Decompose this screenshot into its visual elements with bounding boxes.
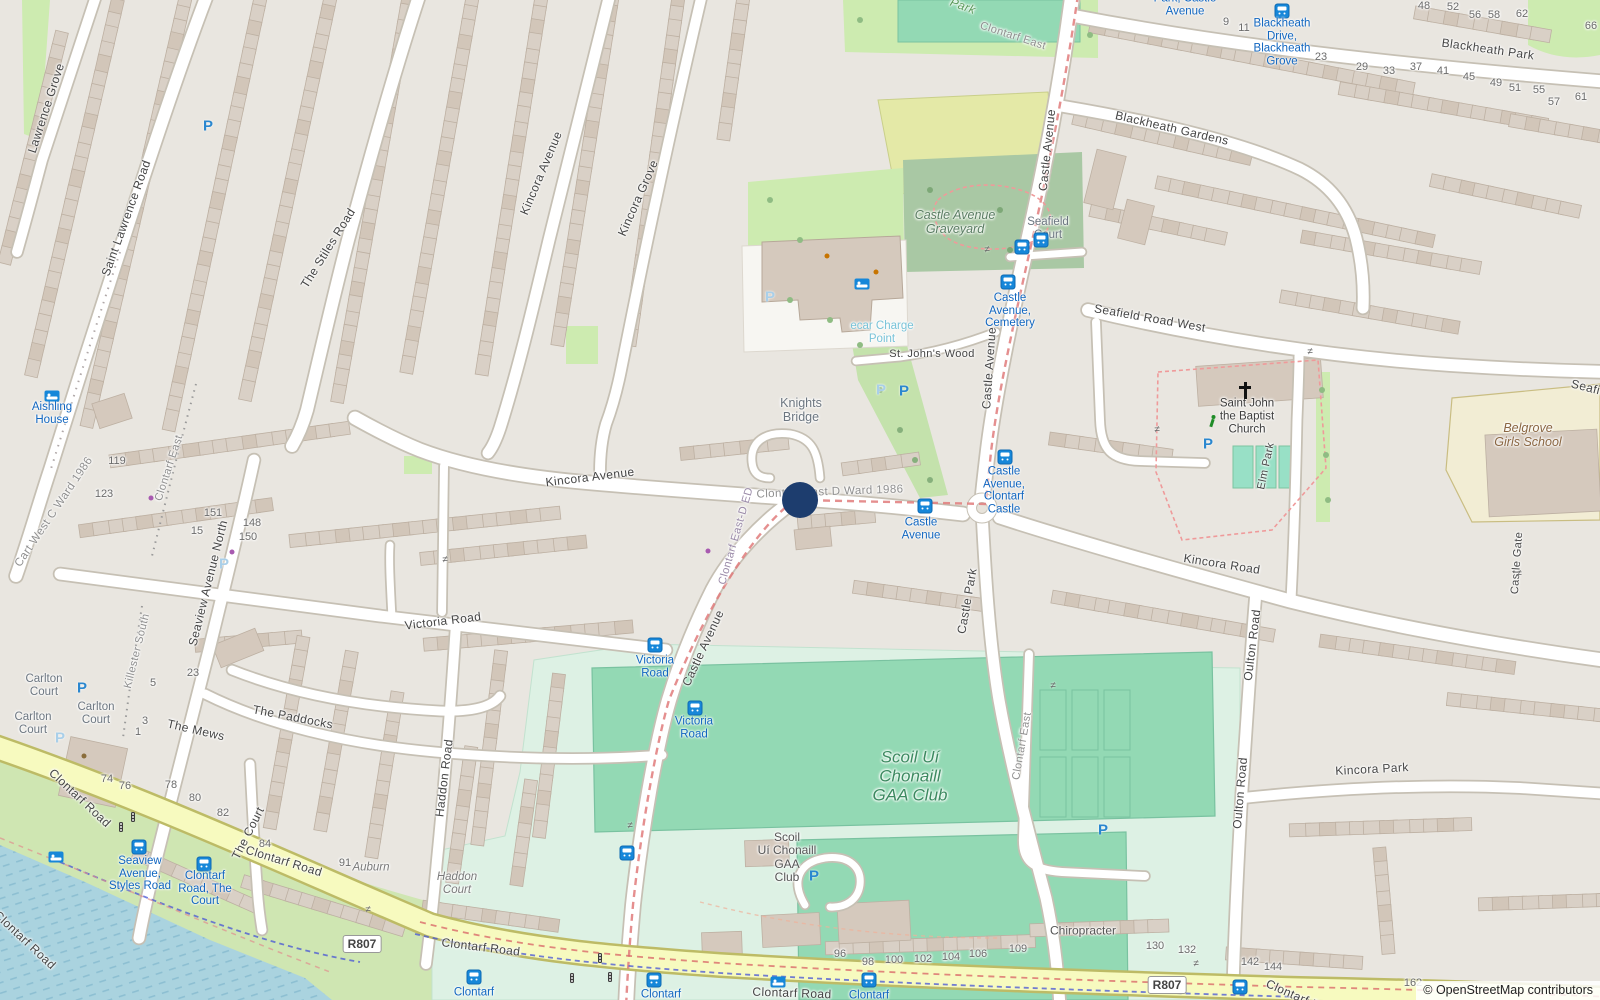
attribution[interactable]: © OpenStreetMap contributors [1416,981,1600,1000]
bus-stop-icon [918,499,933,514]
street-label: Cart West C Ward 1986 [13,455,96,569]
street-label: Kincora Park [1335,760,1409,778]
location-marker[interactable] [782,482,818,518]
traffic-signal-icon [608,972,612,982]
house-number: 9 [1223,16,1229,28]
gate-icon: ≠ [1050,681,1056,692]
bus-stop-label: Clontarf [641,989,681,1000]
parking-icon: P [899,383,909,400]
street-label: Clontarf Road [441,935,521,959]
gate-icon: ≠ [1154,425,1160,436]
street-label: Kincora Grove [615,158,661,239]
gate-icon: ≠ [365,905,371,916]
street-label: Blackheath Gardens [1114,108,1230,148]
house-number: 57 [1548,96,1560,108]
bus-stop-label: Seaview Avenue, Styles Road [109,855,171,893]
parking-icon: P [55,730,65,747]
house-number: 51 [1509,82,1521,94]
bus-stop-label: Clontarf Road, The Court [178,870,232,908]
bus-stop-label: Castle Avenue [902,516,941,541]
house-number: 11 [1238,22,1249,34]
street-label: The Stiles Road [298,206,358,291]
parking-icon: P [203,118,213,135]
bus-stop-icon [688,701,703,716]
parking-icon: P [77,680,87,697]
bus-stop-icon [1001,275,1016,290]
place-label: Auburn [352,862,389,875]
house-number: 23 [187,667,199,679]
house-number: 37 [1410,61,1422,73]
street-label: Elm Park [1255,441,1277,490]
bus-stop-icon [620,846,635,861]
street-label: Lawrence Grove [25,61,67,154]
street-label: Clontarf East D Ward 1986 [756,483,903,500]
house-number: 98 [862,956,874,968]
map-labels-layer: Lawrence GroveSaint Lawrence RoadThe Sti… [0,0,1600,1000]
house-number: 104 [942,951,960,963]
place-label: ecar Charge Point [850,320,913,346]
street-label: Clontarf East [1010,711,1034,781]
street-label: Park [948,0,977,17]
street-label: Seaview Avenue North [186,519,231,648]
bus-stop-label: Blackheath Drive, Blackheath Grove [1254,18,1311,69]
parking-icon: P [1203,436,1213,453]
place-label: Carlton Court [25,673,62,699]
house-number: 56 [1469,9,1481,21]
parking-icon: P [219,556,229,573]
house-number: 49 [1490,77,1502,89]
traffic-signal-icon [598,953,602,963]
parking-icon: P [876,382,886,399]
traffic-signal-icon [131,812,135,822]
poi-dot [82,754,87,759]
place-label: Castle Avenue Graveyard [915,208,996,236]
house-number: 84 [259,838,271,850]
parking-icon: P [765,289,775,306]
house-number: 62 [1516,8,1528,20]
lodging-icon [45,391,60,402]
house-number: 102 [914,953,932,965]
place-label: Aishling House [32,401,72,427]
parking-icon: P [1098,822,1108,839]
street-label: St. John's Wood [889,348,975,360]
house-number: 33 [1383,65,1395,77]
bus-stop-label: Victoria Road [675,715,713,740]
street-label: Haddon Road [432,738,455,818]
place-label: Carlton Court [14,711,51,737]
house-number: 144 [1264,961,1282,973]
street-label: Oulton Road [1241,609,1264,682]
house-number: 58 [1488,9,1500,21]
bus-stop-label: Castle Avenue, Cemetery [985,292,1035,330]
street-label: Clontarf East [153,433,186,502]
house-number: 66 [1585,20,1597,32]
house-number: 132 [1178,944,1196,956]
bus-stop-icon [132,840,147,855]
house-number: 29 [1356,61,1368,73]
street-label: Clontarf Road [0,908,59,972]
bus-stop-icon [467,970,482,985]
route-ref-badge: R807 [343,935,382,953]
place-label: Belgrove Girls School [1494,421,1561,449]
street-label: Clontarf East-D ED [716,486,755,586]
street-label: Oulton Road [1230,757,1250,830]
house-number: 45 [1463,71,1475,83]
house-number: 74 [101,773,113,785]
house-number: 148 [243,517,261,529]
bus-stop-icon [648,638,663,653]
shop-poi-dot [149,496,154,501]
house-number: 150 [239,531,257,543]
food-poi-dot [825,254,830,259]
lodging-icon [771,977,786,988]
house-number: 151 [204,507,222,519]
street-label: Castle Avenue [1036,108,1059,191]
street-label: Castle Avenue [679,608,727,689]
bus-stop-icon [862,973,877,988]
gate-icon: ≠ [984,245,990,256]
house-number: 23 [1315,51,1327,63]
house-number: 119 [108,455,126,467]
street-label: Castle Park [954,567,979,635]
street-label: Killester South [122,612,152,690]
house-number: 96 [834,948,846,960]
place-label: Scoil Uí Chonaill GAA Club [873,747,948,804]
bus-stop-icon [1015,240,1030,255]
house-number: 123 [95,488,113,500]
street-label: Clontarf Road [1264,976,1342,1000]
house-number: 142 [1241,956,1259,968]
house-number: 48 [1418,0,1430,12]
sports-runner-icon [1209,415,1218,427]
bus-stop-label: Park, Castle Avenue [1154,0,1217,18]
house-number: 61 [1575,91,1587,103]
house-number: 130 [1146,940,1164,952]
street-label: Clontarf Road [752,985,832,1000]
gate-icon: ≠ [442,555,448,566]
lodging-icon [49,852,64,863]
street-label: Castle Avenue [979,326,999,409]
shop-poi-dot [706,549,711,554]
house-number: 41 [1437,65,1449,77]
place-label: Carlton Court [77,701,114,727]
bus-stop-label: Clontarf [849,990,889,1000]
bus-stop-icon [647,973,662,988]
house-number: 106 [969,948,987,960]
street-label: Blackheath Park [1441,36,1535,63]
bus-stop-label: Victoria Road [636,654,674,679]
gate-icon: ≠ [1307,347,1313,358]
bus-stop-icon [1275,4,1290,19]
house-number: 3 [142,715,148,727]
gate-icon: ≠ [1193,959,1199,970]
house-number: 1 [135,726,141,738]
place-label: Chiropracter [1050,924,1116,937]
house-number: 5 [150,677,156,689]
house-number: 55 [1533,84,1545,96]
traffic-signal-icon [119,822,123,832]
house-number: 100 [885,954,903,966]
house-number: 80 [189,792,201,804]
gate-icon: ≠ [1516,569,1522,580]
house-number: 91 [339,857,351,869]
house-number: 76 [119,780,131,792]
street-label: Kincora Avenue [517,129,565,217]
street-label: Clontarf East [978,20,1047,53]
street-label: The Paddocks [252,702,335,731]
place-label: Saint John the Baptist Church [1220,398,1274,437]
place-label: Knights Bridge [780,396,822,424]
house-number: 78 [165,779,177,791]
street-label: Castle Gate [1509,531,1525,594]
place-label: Scoil Uí Chonaill GAA Club [758,831,817,885]
street-label: Kincora Avenue [545,465,635,490]
place-label: Haddon Court [437,871,477,897]
shop-poi-dot [230,550,235,555]
bus-stop-icon [998,450,1013,465]
house-number: 15 [191,525,203,537]
street-label: Seafield Road West [1093,301,1207,334]
bus-stop-label: Castle Avenue, Clontarf Castle [983,466,1025,517]
bus-stop-icon [1233,980,1248,995]
route-ref-badge: R807 [1148,976,1187,994]
gate-icon: ≠ [627,821,633,832]
street-label: Victoria Road [404,609,482,632]
house-number: 82 [217,807,229,819]
lodging-icon [855,279,870,290]
street-label: Clontarf Road [244,843,324,880]
street-label: The Mews [166,717,226,744]
street-label: Kincora Road [1183,551,1262,577]
street-label: Saint Lawrence Road [99,158,154,278]
parking-icon: P [809,868,819,885]
map-viewport[interactable]: Lawrence GroveSaint Lawrence RoadThe Sti… [0,0,1600,1000]
house-number: 52 [1447,1,1459,13]
food-poi-dot [874,270,879,275]
bus-stop-icon [1034,233,1049,248]
church-cross-icon [1237,382,1253,400]
street-label: Seafield [1570,377,1600,402]
traffic-signal-icon [570,973,574,983]
bus-stop-label: Clontarf [454,987,494,1000]
house-number: 109 [1009,943,1027,955]
